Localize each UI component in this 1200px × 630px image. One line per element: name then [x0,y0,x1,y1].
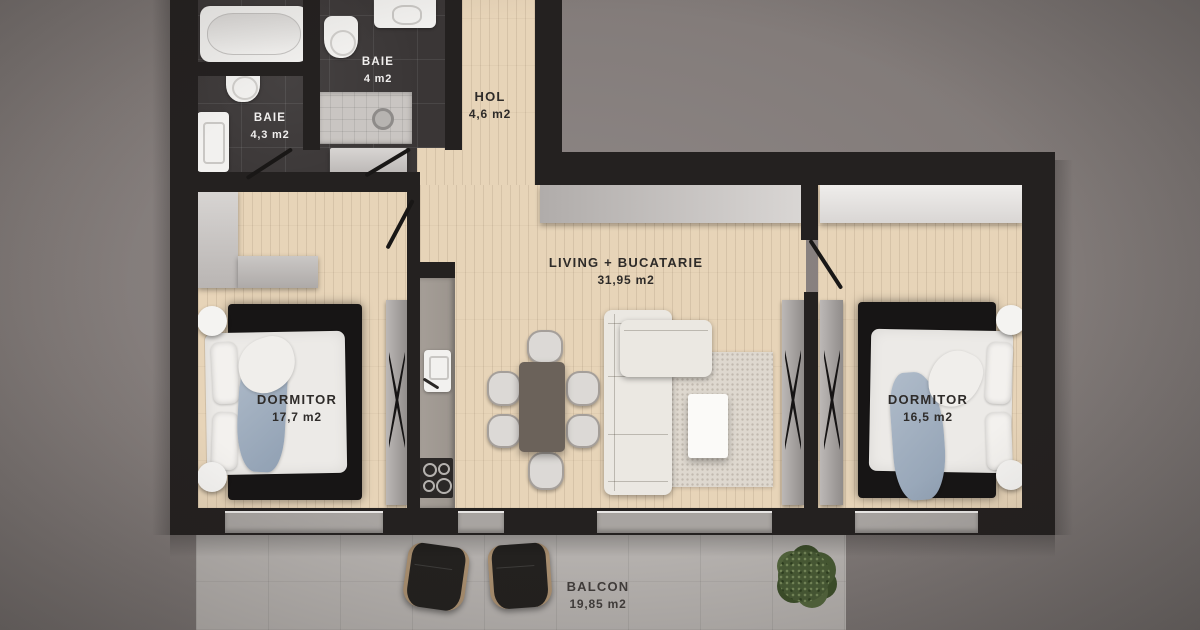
shower [318,92,412,144]
room-label-dormitor-left: DORMITOR 17,7 m2 [257,393,337,423]
window [458,511,504,533]
wall [801,152,818,240]
dining-chair [566,414,600,448]
wall [1022,152,1055,535]
sofa-seam [614,314,615,491]
floor-plan: BAIE 4 m2 BAIE 4,3 m2 HOL 4,6 m2 LIVING … [0,0,1200,630]
dining-chair [487,371,521,406]
room-label-baie-small: BAIE 4 m2 [362,57,394,85]
window [225,511,383,533]
pillow [210,341,239,404]
sink-basin [429,356,449,380]
wall [535,152,1055,185]
sink-basin [392,5,422,25]
toilet-bowl [232,76,258,100]
room-name: LIVING + BUCATARIE [549,256,703,269]
sofa-chaise [620,320,712,377]
pillow [984,341,1013,404]
room-label-hol: HOL 4,6 m2 [469,90,511,120]
wall [303,0,320,150]
room-area: 16,5 m2 [888,411,968,423]
dining-chair [566,371,600,406]
burner [423,480,435,492]
room-name: HOL [469,90,511,103]
burner [436,478,452,494]
dining-chair [528,452,564,490]
sofa-seam [624,330,708,331]
burner [438,463,450,475]
dining-chair [527,330,563,364]
tv-cabinet [782,300,804,505]
bathtub-basin [207,13,301,55]
tv-cabinet [386,300,408,505]
cooktop [419,458,453,498]
potted-plant [778,550,830,602]
room-area: 19,85 m2 [567,598,630,610]
dining-table [519,362,565,452]
wall-shadow-left [152,0,170,535]
tv-cabinet [820,300,843,505]
dining-chair [487,414,521,448]
room-area: 4,3 m2 [250,130,289,141]
wardrobe-band [820,185,1022,223]
wardrobe [238,256,318,288]
bathtub [200,6,308,62]
room-label-living: LIVING + BUCATARIE 31,95 m2 [549,256,703,286]
chair-seam [496,565,534,569]
wall [804,292,818,508]
coffee-table [688,394,728,458]
room-label-baie-big: BAIE 4,3 m2 [250,113,289,141]
nightstand [197,462,227,492]
wall [407,192,420,508]
nightstand [197,306,227,336]
tv-icon [824,350,840,450]
window [855,511,978,533]
chair-seam [414,564,452,570]
sofa-seam [608,434,668,435]
room-name: DORMITOR [888,393,968,406]
toilet-bowl [330,30,356,56]
wall-shadow-right [1055,160,1073,535]
tv-icon [389,352,405,448]
room-label-dormitor-right: DORMITOR 16,5 m2 [888,393,968,423]
wardrobe-band [540,185,802,223]
room-name: BALCON [567,580,630,593]
room-label-balcon: BALCON 19,85 m2 [567,580,630,610]
room-area: 31,95 m2 [549,274,703,286]
tv-icon [785,350,801,450]
window [597,511,772,533]
room-area: 4,6 m2 [469,108,511,120]
room-area: 17,7 m2 [257,411,337,423]
wardrobe [198,190,238,288]
sofa-seam [608,481,668,482]
wall [170,0,198,535]
wall [407,262,455,278]
bathroom-sink [197,112,229,172]
hallway-floor-upper [462,0,535,160]
shower-drain [372,108,394,130]
room-name: BAIE [250,113,289,125]
toilet [324,16,358,58]
bathroom-sink-counter [374,0,436,28]
burner [423,463,437,477]
wall-shadow-bottom [170,535,1055,557]
room-area: 4 m2 [362,74,394,85]
wall [197,62,303,76]
kitchen-sink [424,350,451,392]
room-name: BAIE [362,57,394,69]
wall [170,172,420,192]
wall [445,0,462,150]
sink-basin [203,122,225,164]
room-name: DORMITOR [257,393,337,406]
wall [535,0,562,160]
